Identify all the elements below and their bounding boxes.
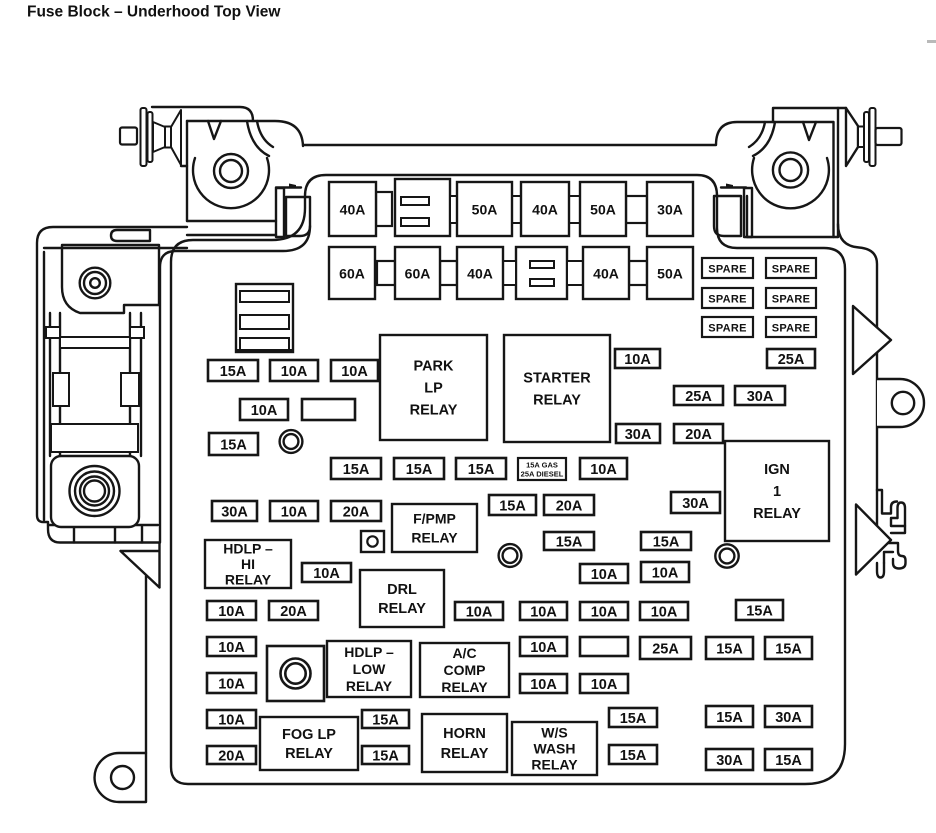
svg-text:30A: 30A — [682, 496, 709, 512]
svg-text:RELAY: RELAY — [225, 572, 272, 588]
svg-text:FOG LP: FOG LP — [282, 727, 336, 743]
svg-text:30A: 30A — [775, 710, 802, 726]
svg-text:15A: 15A — [556, 534, 583, 550]
svg-text:50A: 50A — [590, 201, 616, 217]
svg-text:30A: 30A — [221, 504, 248, 520]
svg-text:RELAY: RELAY — [533, 393, 581, 409]
svg-text:10A: 10A — [341, 364, 368, 380]
svg-text:WASH: WASH — [534, 741, 576, 757]
svg-text:1: 1 — [773, 484, 781, 500]
svg-text:HDLP –: HDLP – — [223, 541, 273, 557]
svg-text:25A DIESEL: 25A DIESEL — [521, 470, 564, 479]
svg-text:15A GAS: 15A GAS — [526, 461, 558, 470]
svg-text:40A: 40A — [532, 201, 558, 217]
svg-text:HI: HI — [241, 556, 255, 572]
svg-text:15A: 15A — [775, 641, 802, 657]
svg-text:20A: 20A — [218, 748, 245, 764]
svg-text:15A: 15A — [406, 462, 433, 478]
svg-text:10A: 10A — [591, 677, 618, 693]
svg-text:40A: 40A — [467, 265, 493, 281]
svg-text:10A: 10A — [530, 640, 557, 656]
svg-text:COMP: COMP — [444, 662, 486, 678]
svg-text:10A: 10A — [591, 604, 618, 620]
svg-text:15A: 15A — [716, 710, 743, 726]
svg-text:SPARE: SPARE — [772, 293, 811, 305]
svg-text:HORN: HORN — [443, 726, 486, 742]
svg-text:RELAY: RELAY — [441, 679, 488, 695]
svg-text:STARTER: STARTER — [523, 371, 591, 387]
svg-text:Fuse Block – Underhood Top Vie: Fuse Block – Underhood Top View — [27, 4, 281, 21]
svg-text:60A: 60A — [339, 265, 365, 281]
svg-text:PARK: PARK — [413, 359, 454, 375]
svg-text:15A: 15A — [220, 437, 247, 453]
svg-text:10A: 10A — [466, 604, 493, 620]
svg-text:15A: 15A — [653, 534, 680, 550]
svg-text:10A: 10A — [313, 566, 340, 582]
svg-text:25A: 25A — [685, 389, 712, 405]
svg-text:40A: 40A — [593, 265, 619, 281]
svg-text:15A: 15A — [220, 364, 247, 380]
svg-text:RELAY: RELAY — [753, 506, 801, 522]
svg-text:15A: 15A — [372, 712, 399, 728]
svg-text:10A: 10A — [590, 462, 617, 478]
svg-text:F/PMP: F/PMP — [413, 511, 456, 527]
svg-text:RELAY: RELAY — [441, 746, 489, 762]
svg-text:RELAY: RELAY — [285, 746, 333, 762]
svg-text:10A: 10A — [281, 364, 308, 380]
svg-text:10A: 10A — [624, 352, 651, 368]
svg-text:RELAY: RELAY — [378, 601, 426, 617]
svg-text:60A: 60A — [405, 265, 431, 281]
svg-text:10A: 10A — [530, 604, 557, 620]
svg-text:50A: 50A — [472, 201, 498, 217]
svg-text:15A: 15A — [716, 641, 743, 657]
svg-text:15A: 15A — [620, 748, 647, 764]
svg-text:20A: 20A — [280, 604, 307, 620]
svg-text:10A: 10A — [652, 565, 679, 581]
svg-text:LOW: LOW — [353, 661, 386, 677]
svg-text:15A: 15A — [468, 462, 495, 478]
svg-text:10A: 10A — [218, 640, 245, 656]
svg-text:10A: 10A — [281, 504, 308, 520]
svg-text:RELAY: RELAY — [346, 678, 393, 694]
svg-text:10A: 10A — [218, 604, 245, 620]
svg-text:A/C: A/C — [452, 645, 476, 661]
svg-text:10A: 10A — [218, 712, 245, 728]
svg-text:LP: LP — [424, 381, 443, 397]
svg-text:15A: 15A — [746, 603, 773, 619]
svg-text:20A: 20A — [685, 427, 712, 443]
svg-text:SPARE: SPARE — [708, 322, 747, 334]
svg-text:40A: 40A — [340, 201, 366, 217]
svg-text:15A: 15A — [620, 711, 647, 727]
svg-text:15A: 15A — [343, 462, 370, 478]
svg-text:30A: 30A — [747, 389, 774, 405]
svg-text:15A: 15A — [372, 748, 399, 764]
svg-text:30A: 30A — [657, 201, 683, 217]
svg-text:DRL: DRL — [387, 582, 417, 598]
svg-text:RELAY: RELAY — [411, 530, 458, 546]
svg-text:25A: 25A — [652, 641, 679, 657]
svg-text:25A: 25A — [778, 352, 805, 368]
svg-text:HDLP –: HDLP – — [344, 644, 394, 660]
svg-text:20A: 20A — [556, 498, 583, 514]
svg-text:30A: 30A — [716, 753, 743, 769]
svg-text:20A: 20A — [343, 504, 370, 520]
svg-text:SPARE: SPARE — [772, 263, 811, 275]
svg-text:10A: 10A — [218, 676, 245, 692]
svg-text:W/S: W/S — [541, 725, 567, 741]
svg-text:RELAY: RELAY — [410, 403, 458, 419]
svg-text:10A: 10A — [530, 677, 557, 693]
svg-text:SPARE: SPARE — [772, 322, 811, 334]
svg-text:10A: 10A — [251, 403, 278, 419]
svg-text:50A: 50A — [657, 265, 683, 281]
svg-text:SPARE: SPARE — [708, 293, 747, 305]
svg-text:10A: 10A — [651, 604, 678, 620]
svg-text:30A: 30A — [625, 427, 652, 443]
svg-text:10A: 10A — [591, 567, 618, 583]
svg-text:IGN: IGN — [764, 462, 790, 478]
svg-text:RELAY: RELAY — [531, 757, 578, 773]
svg-text:15A: 15A — [499, 498, 526, 514]
svg-text:SPARE: SPARE — [708, 263, 747, 275]
svg-text:15A: 15A — [775, 753, 802, 769]
